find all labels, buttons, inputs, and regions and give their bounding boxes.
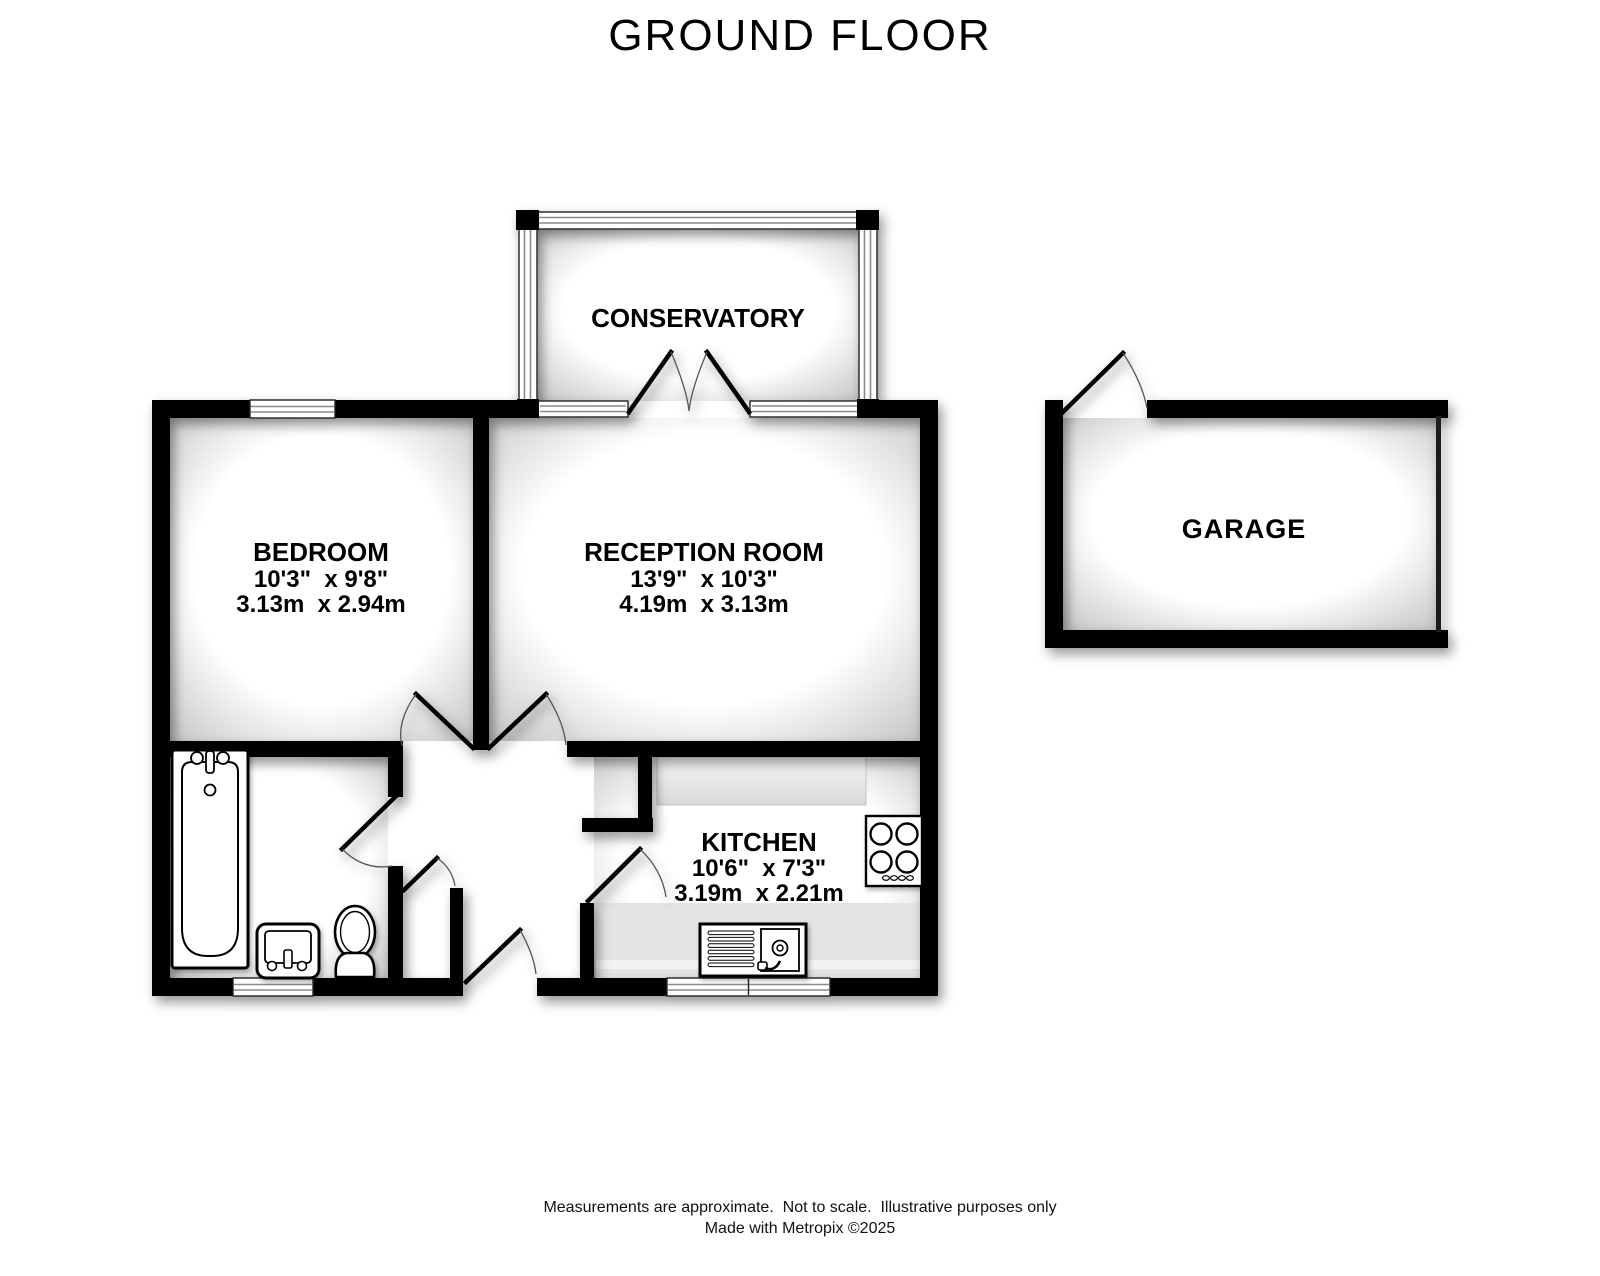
glazing-post — [857, 399, 879, 418]
window-conservatory-left — [519, 229, 537, 401]
glazing-post — [516, 210, 539, 230]
wall-kitchen-top — [567, 741, 920, 757]
footer-credit: Made with Metropix ©2025 — [705, 1220, 896, 1237]
wall-segment — [582, 818, 653, 832]
floorplan-page: GROUND FLOOR — [0, 0, 1600, 1276]
page-title: GROUND FLOOR — [608, 11, 991, 60]
wall-segment — [450, 888, 463, 978]
counter-top-icon — [657, 757, 866, 805]
wall-segment — [152, 400, 250, 418]
footer: Measurements are approximate. Not to sca… — [543, 1199, 1056, 1237]
wall-segment — [388, 757, 403, 797]
conservatory-label: CONSERVATORY — [591, 303, 805, 333]
kitchen-label: KITCHEN — [701, 827, 817, 857]
window-conservatory-bottom-left — [538, 401, 628, 417]
glazing-post — [517, 399, 539, 418]
bedroom-dim-metric: 3.13m x 2.94m — [236, 591, 405, 618]
wall-segment — [638, 757, 652, 818]
window-bathroom — [233, 978, 313, 996]
reception-label: RECEPTION ROOM — [584, 537, 824, 567]
wall-segment — [152, 978, 233, 996]
kitchen-sink-icon — [700, 924, 806, 976]
toilet-icon — [335, 906, 375, 977]
wall-segment — [920, 400, 938, 996]
window-conservatory-right — [859, 229, 877, 401]
wall-segment — [830, 978, 938, 996]
reception-dim-metric: 4.19m x 3.13m — [619, 591, 788, 618]
sink-icon — [257, 924, 319, 978]
wall-garage-top — [1147, 400, 1448, 418]
hob-icon — [866, 816, 922, 886]
floorplan-canvas: GROUND FLOOR — [0, 0, 1600, 1276]
wall-segment — [313, 978, 463, 996]
reception-dim-imperial: 13'9" x 10'3" — [630, 566, 778, 593]
wall-garage-left — [1045, 400, 1063, 648]
wall-bedroom-reception-divider — [473, 418, 489, 750]
kitchen-dim-imperial: 10'6" x 7'3" — [692, 855, 826, 882]
wall-segment — [580, 903, 594, 978]
bedroom-dim-imperial: 10'3" x 9'8" — [254, 566, 388, 593]
wall-segment — [537, 978, 667, 996]
footer-disclaimer: Measurements are approximate. Not to sca… — [543, 1199, 1056, 1216]
wall-segment — [388, 866, 403, 978]
glazing-post — [856, 210, 879, 230]
window-conservatory-top — [519, 212, 878, 229]
bath-icon — [172, 750, 248, 968]
wall-segment — [335, 400, 519, 418]
door-garage-entry — [1063, 353, 1123, 412]
kitchen-dim-metric: 3.19m x 2.21m — [674, 880, 843, 907]
window-bedroom — [250, 400, 335, 418]
wall-garage-bottom — [1045, 630, 1448, 648]
window-conservatory-bottom-right — [750, 401, 859, 417]
wall-segment — [152, 400, 170, 996]
wall-segment — [1434, 400, 1448, 417]
garage-label: GARAGE — [1182, 514, 1307, 544]
bedroom-label: BEDROOM — [253, 537, 389, 567]
wall-segment — [1434, 631, 1448, 648]
garage-door-icon — [1436, 416, 1441, 632]
